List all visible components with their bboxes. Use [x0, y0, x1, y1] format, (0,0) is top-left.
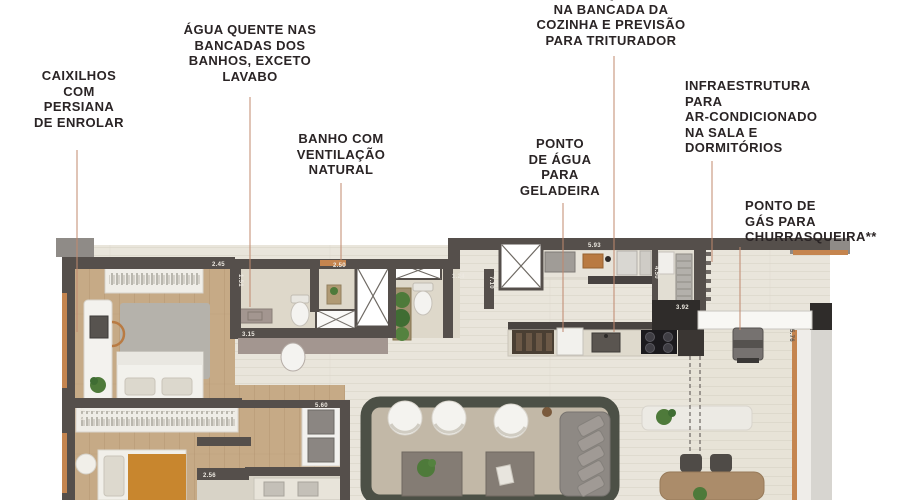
grill-band: [733, 340, 763, 348]
burner: [664, 344, 673, 353]
wall-bath-divider: [388, 262, 396, 338]
dimension-label: 4.04: [78, 408, 84, 421]
plant: [330, 287, 338, 295]
nightstand: [76, 454, 96, 474]
floor-plan: 2.451.512.501.247.105.933.154.503.925.76…: [0, 0, 900, 500]
plant-leaf: [90, 377, 98, 385]
window-strip: [793, 250, 848, 255]
plant-leaf: [428, 459, 436, 467]
fridge: [557, 328, 583, 355]
cutting-board: [583, 254, 603, 268]
backsplash: [588, 276, 652, 284]
dimension-label: 5.76: [788, 329, 794, 342]
closet-clothes: [80, 411, 235, 426]
toilet: [414, 291, 432, 315]
dining-chair: [680, 454, 702, 472]
dimension-label: 1.24: [452, 274, 465, 280]
sink: [264, 482, 284, 496]
brise-tooth: [706, 279, 711, 283]
brise-tooth: [706, 261, 711, 265]
bed-blanket: [128, 454, 186, 500]
wall-suite2-top: [62, 398, 242, 408]
dimension-label: 5.60: [315, 403, 328, 409]
dining-chair: [710, 454, 732, 472]
plant: [395, 327, 409, 341]
dimension-label: 7.10: [488, 276, 494, 289]
burner: [646, 344, 655, 353]
kitchen-sink: [545, 252, 575, 272]
terrace-rail-wood: [792, 330, 797, 500]
wine-slot: [526, 333, 532, 351]
wine-slot: [546, 333, 552, 351]
armchair: [388, 401, 422, 435]
dimension-label: 5.93: [588, 243, 601, 249]
dimension-label: 2.56: [203, 473, 216, 479]
brise-tooth: [706, 288, 711, 292]
terrace-outer-ledge: [811, 330, 832, 500]
brise-tooth: [706, 297, 711, 301]
appliance: [640, 251, 651, 275]
dimension-label: 2.45: [212, 262, 225, 268]
decor: [542, 407, 552, 417]
black-pillar: [810, 303, 832, 330]
dimension-label: 3.92: [676, 305, 689, 311]
armchair: [432, 401, 466, 435]
brise-tooth: [706, 252, 711, 256]
wall-top-bathrooms: [235, 259, 460, 269]
brise-tooth: [706, 270, 711, 274]
wall-entry: [484, 269, 494, 309]
sink: [298, 482, 318, 496]
pillow: [104, 456, 124, 496]
washer: [658, 252, 674, 274]
dining-table: [660, 472, 764, 500]
toilet: [291, 302, 309, 326]
plant: [394, 292, 410, 308]
bath1-counter: [240, 309, 272, 323]
grill-base: [737, 358, 759, 363]
pillow: [162, 378, 192, 395]
sink: [308, 410, 334, 434]
terrace-parapet: [698, 311, 812, 329]
wall-suite2-right: [340, 400, 350, 500]
lavabo-counter: [238, 338, 388, 354]
faucet: [604, 334, 608, 338]
sink: [308, 438, 334, 462]
dimension-label: 1.51: [237, 274, 243, 287]
kitchen-item: [605, 256, 611, 262]
corner-column: [56, 238, 94, 257]
wall: [197, 437, 251, 446]
dimension-label: 4.50: [653, 266, 659, 279]
burner: [664, 333, 673, 342]
bed-fold: [117, 352, 203, 365]
wall-hall: [242, 400, 348, 408]
burner: [646, 333, 655, 342]
dimension-label: 2.50: [333, 263, 346, 269]
toilet-tank: [413, 283, 433, 291]
book: [496, 465, 513, 486]
persiana-window: [62, 293, 67, 388]
terrace-rail: [797, 330, 811, 500]
monitor: [90, 316, 108, 338]
wall-bath-divider: [310, 269, 319, 312]
closet-clothes: [109, 270, 200, 285]
plant-leaf: [668, 409, 676, 417]
wine-slot: [516, 333, 522, 351]
wine-slot: [536, 333, 542, 351]
lavabo-basin: [281, 343, 305, 371]
dimension-label: 3.15: [242, 332, 255, 338]
wall-top-bedroom1: [62, 257, 235, 269]
armchair: [494, 404, 528, 438]
pillow: [125, 378, 155, 395]
wall: [245, 467, 348, 476]
floor-plan-page: 2.451.512.501.247.105.933.154.503.925.76…: [0, 0, 900, 500]
appliance: [617, 251, 637, 275]
persiana-window: [62, 433, 67, 493]
